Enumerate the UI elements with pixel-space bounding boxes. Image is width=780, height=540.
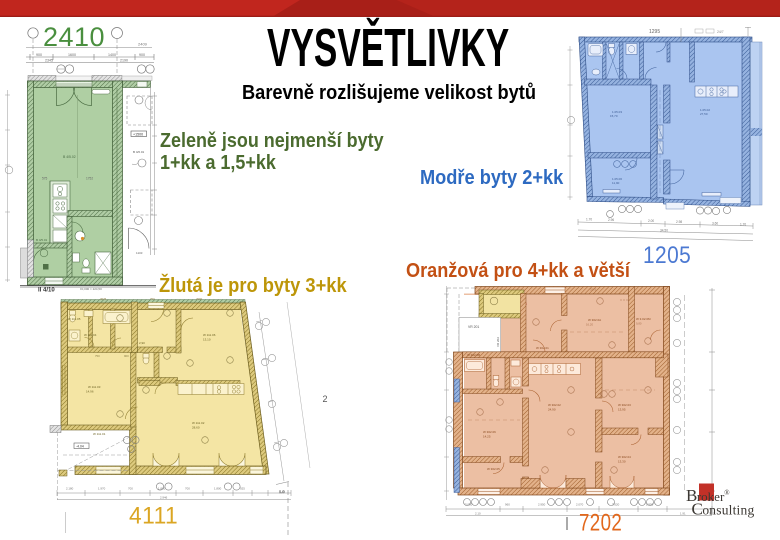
svg-text:900: 900 — [36, 53, 42, 57]
svg-text:700: 700 — [185, 487, 190, 491]
svg-text:28,60: 28,60 — [192, 426, 200, 430]
svg-text:B 4/6.01: B 4/6.01 — [133, 150, 145, 154]
svg-text:960: 960 — [505, 503, 510, 507]
svg-text:2.620: 2.620 — [612, 503, 620, 507]
svg-text:925: 925 — [240, 487, 245, 491]
svg-text:2.10: 2.10 — [475, 512, 481, 516]
svg-text:2409: 2409 — [138, 42, 148, 47]
svg-text:900: 900 — [124, 354, 129, 358]
svg-text:11,90: 11,90 — [612, 181, 620, 185]
svg-text:W 111.05: W 111.05 — [68, 317, 81, 321]
svg-text:2.98: 2.98 — [676, 220, 682, 224]
svg-text:750: 750 — [95, 354, 100, 358]
svg-text:14,96: 14,96 — [86, 390, 94, 394]
svg-text:1.950: 1.950 — [646, 503, 654, 507]
svg-text:9,80: 9,80 — [636, 322, 642, 326]
svg-text:1600: 1600 — [68, 53, 76, 57]
svg-text:VR 201: VR 201 — [468, 325, 479, 329]
svg-text:2960: 2960 — [196, 297, 203, 301]
svg-text:2.950: 2.950 — [538, 503, 546, 507]
svg-text:13,10: 13,10 — [203, 338, 211, 342]
svg-text:575: 575 — [42, 177, 48, 181]
svg-text:2,90: 2,90 — [139, 341, 145, 345]
svg-text:2: 2 — [323, 394, 328, 404]
svg-text:15,70: 15,70 — [610, 114, 618, 118]
svg-text:VR 202: VR 202 — [496, 337, 500, 347]
svg-text:1103: 1103 — [136, 251, 143, 255]
svg-text:1295: 1295 — [649, 29, 660, 35]
svg-text:1400: 1400 — [108, 53, 116, 57]
svg-text:2.00: 2.00 — [648, 219, 654, 223]
svg-text:900: 900 — [139, 53, 145, 57]
svg-text:W 111.04: W 111.04 — [84, 333, 97, 337]
svg-text:3.050: 3.050 — [465, 503, 473, 507]
svg-text:1.800: 1.800 — [158, 487, 166, 491]
svg-text:24/7: 24/7 — [717, 30, 724, 34]
svg-text:14,25: 14,25 — [483, 435, 491, 439]
svg-text:W 302.04: W 302.04 — [618, 455, 631, 459]
svg-text:W 302.05: W 302.05 — [487, 467, 500, 471]
svg-text:B 4/5.01: B 4/5.01 — [36, 238, 48, 242]
svg-text:W 302.06: W 302.06 — [483, 430, 496, 434]
svg-text:3625: 3625 — [100, 297, 107, 301]
svg-text:700: 700 — [128, 487, 133, 491]
svg-text:24,90: 24,90 — [548, 408, 556, 412]
svg-text:13,30: 13,30 — [618, 460, 626, 464]
svg-text:1752: 1752 — [86, 177, 93, 181]
svg-text:1.70: 1.70 — [740, 223, 746, 227]
svg-text:W 111.01: W 111.01 — [93, 432, 106, 436]
svg-text:2.070: 2.070 — [576, 503, 584, 507]
svg-text:W 3.02.0M: W 3.02.0M — [636, 317, 651, 321]
svg-text:2.180: 2.180 — [66, 487, 74, 491]
svg-text:+1500: +1500 — [133, 133, 143, 137]
svg-text:16,20: 16,20 — [586, 323, 593, 327]
svg-text:B 4/5.02: B 4/5.02 — [63, 155, 76, 159]
svg-text:1.70: 1.70 — [586, 218, 592, 222]
svg-text:2345: 2345 — [45, 59, 53, 63]
svg-text:750: 750 — [150, 297, 155, 301]
svg-text:±0,000 = 224,50: ±0,000 = 224,50 — [80, 287, 102, 291]
svg-text:W 302.02: W 302.02 — [548, 403, 561, 407]
svg-text:W 111.06: W 111.06 — [203, 333, 216, 337]
svg-text:-4.04: -4.04 — [76, 445, 84, 449]
svg-text:3.60: 3.60 — [712, 222, 718, 226]
svg-text:W 302.0B: W 302.0B — [467, 353, 480, 357]
svg-text:II 4/10: II 4/10 — [38, 288, 55, 294]
svg-text:W 302.03: W 302.03 — [618, 403, 631, 407]
svg-text:1.91: 1.91 — [680, 512, 686, 516]
svg-text:7202: 7202 — [579, 509, 622, 536]
svg-text:34.50: 34.50 — [660, 229, 668, 233]
svg-text:W 111.03: W 111.03 — [88, 385, 101, 389]
svg-text:1.800: 1.800 — [214, 487, 222, 491]
svg-text:27,50: 27,50 — [700, 112, 708, 116]
svg-text:W 302.0A: W 302.0A — [588, 318, 601, 322]
svg-text:13,95: 13,95 — [618, 408, 626, 412]
svg-text:2190: 2190 — [120, 59, 128, 63]
svg-text:2.946: 2.946 — [160, 496, 168, 500]
svg-text:Consulting: Consulting — [692, 500, 755, 519]
svg-text:1205: 1205 — [643, 242, 691, 269]
svg-text:W 302.01: W 302.01 — [536, 346, 549, 350]
svg-text:1.970: 1.970 — [98, 487, 106, 491]
svg-text:4111: 4111 — [129, 502, 178, 529]
svg-text:2.96: 2.96 — [608, 218, 614, 222]
svg-text:3175: 3175 — [590, 288, 597, 292]
svg-text:W 111.02: W 111.02 — [192, 421, 205, 425]
